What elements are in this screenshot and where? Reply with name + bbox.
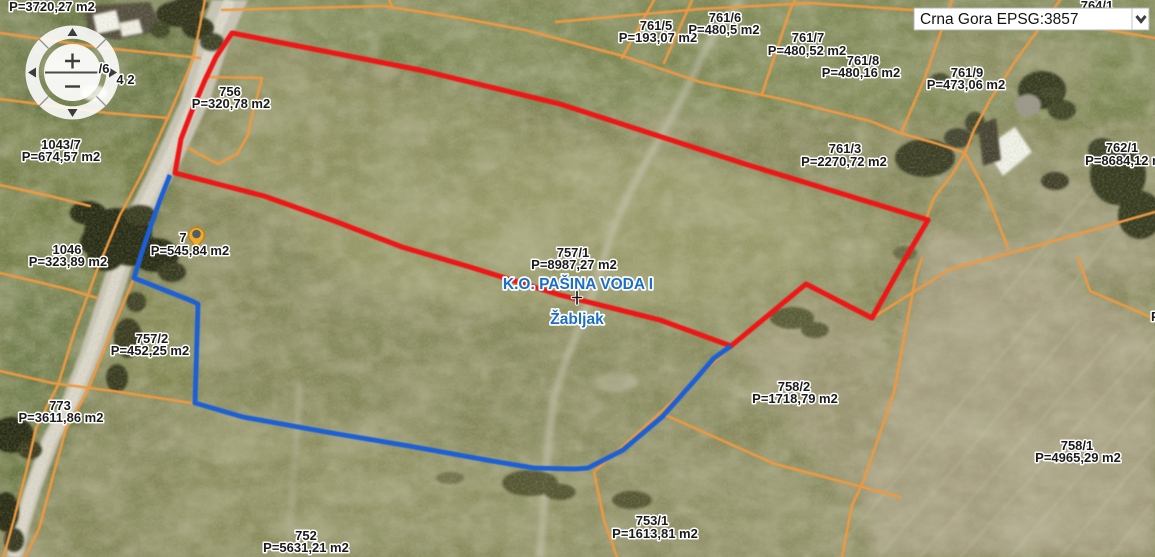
svg-text:P=193,07 m2: P=193,07 m2 (619, 30, 697, 45)
svg-text:P=545,84 m2: P=545,84 m2 (151, 243, 229, 258)
svg-text:2: 2 (127, 72, 134, 87)
svg-text:P=: P= (1151, 309, 1155, 324)
svg-text:/6: /6 (99, 61, 110, 76)
svg-text:Crna Gora EPSG:3857: Crna Gora EPSG:3857 (920, 11, 1079, 28)
svg-text:P=8987,27 m2: P=8987,27 m2 (531, 257, 617, 272)
svg-text:P=480,52 m2: P=480,52 m2 (768, 43, 846, 58)
svg-text:P=1718,79 m2: P=1718,79 m2 (752, 391, 838, 406)
svg-text:P=1613,81 m2: P=1613,81 m2 (612, 526, 698, 541)
svg-text:P=5631,21 m2: P=5631,21 m2 (263, 540, 349, 555)
svg-text:P=4965,29 m2: P=4965,29 m2 (1035, 450, 1121, 465)
svg-text:P=452,25 m2: P=452,25 m2 (111, 343, 189, 358)
svg-text:P=480,5 m2: P=480,5 m2 (688, 22, 759, 37)
svg-text:P=480,16 m2: P=480,16 m2 (822, 65, 900, 80)
svg-text:P=3720,27 m2: P=3720,27 m2 (9, 0, 95, 14)
svg-text:P=2270,72 m2: P=2270,72 m2 (801, 154, 887, 169)
svg-text:4: 4 (116, 72, 124, 87)
svg-text:P=473,06 m2: P=473,06 m2 (927, 77, 1005, 92)
svg-text:Žabljak: Žabljak (550, 310, 604, 328)
svg-text:P=323,89 m2: P=323,89 m2 (29, 254, 107, 269)
svg-text:P=8684,12 m2: P=8684,12 m2 (1085, 153, 1155, 168)
svg-text:P=3611,86 m2: P=3611,86 m2 (19, 410, 104, 425)
svg-text:P=320,78 m2: P=320,78 m2 (192, 96, 270, 111)
svg-text:P=674,57 m2: P=674,57 m2 (22, 149, 100, 164)
